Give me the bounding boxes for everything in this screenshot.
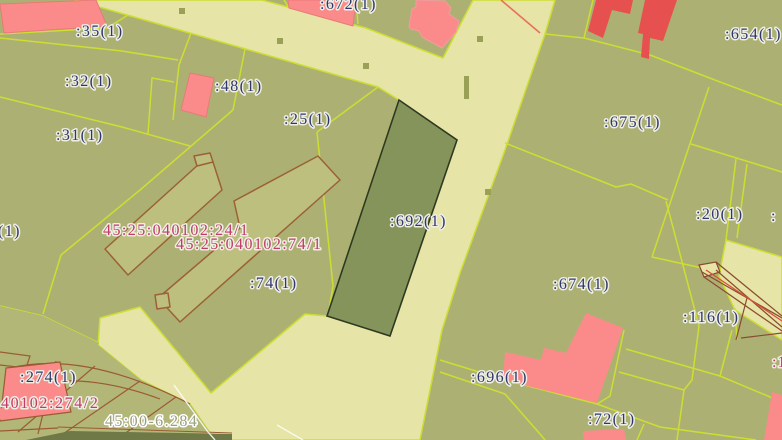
svg-text::72(1): :72(1) [588,411,636,428]
svg-text::74(1): :74(1) [250,275,298,292]
svg-text::1: :1 [772,354,782,371]
svg-text::675(1): :675(1) [604,114,661,131]
svg-text:45:00-6.284: 45:00-6.284 [105,413,198,430]
svg-text::274(1): :274(1) [20,369,77,386]
svg-text::32(1): :32(1) [65,73,113,90]
svg-text::116(1): :116(1) [683,309,739,326]
svg-text::654(1): :654(1) [725,26,782,43]
svg-text::674(1): :674(1) [553,276,610,293]
svg-text:45:25:040102:74/1: 45:25:040102:74/1 [176,236,322,253]
svg-text::25(1): :25(1) [284,111,332,128]
svg-text::20(1): :20(1) [696,206,744,223]
svg-text::48(1): :48(1) [215,78,263,95]
svg-text::35(1): :35(1) [76,23,124,40]
svg-text::672(1): :672(1) [320,0,377,13]
svg-text::696(1): :696(1) [471,369,528,386]
svg-text::: : [771,208,777,225]
svg-text:40102:274/2: 40102:274/2 [1,395,100,412]
svg-text::692(1): :692(1) [390,213,447,230]
svg-text::31(1): :31(1) [56,127,104,144]
svg-text:(1): (1) [0,223,21,240]
